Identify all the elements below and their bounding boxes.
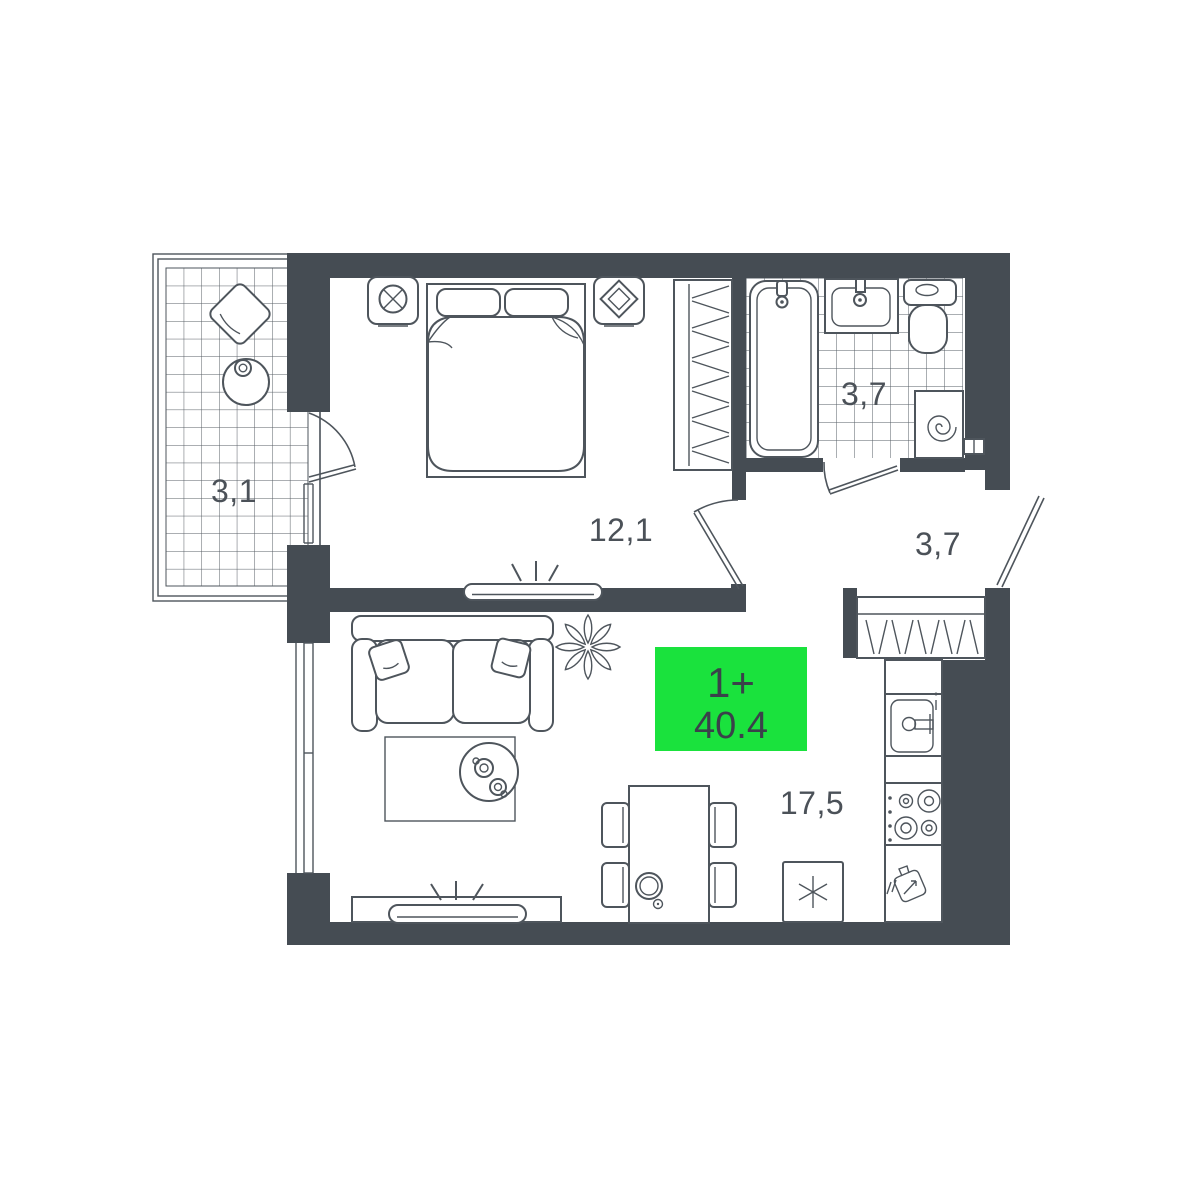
dining-chair bbox=[709, 863, 736, 907]
stove bbox=[885, 783, 942, 845]
dining-chair bbox=[602, 863, 629, 907]
snowflake-icon bbox=[799, 876, 827, 908]
pillow bbox=[505, 289, 568, 316]
kitchen-counter bbox=[885, 660, 942, 922]
blanket bbox=[428, 317, 584, 471]
bathtub bbox=[750, 281, 818, 457]
apartment-type-label: 1+ bbox=[707, 659, 755, 706]
bedroom-door bbox=[694, 500, 743, 589]
sofa-pillow bbox=[490, 637, 531, 678]
balcony-table bbox=[223, 359, 269, 405]
sofa bbox=[352, 616, 553, 731]
living-room-window bbox=[296, 643, 313, 873]
floor-plan: 3,1 bbox=[0, 0, 1200, 1200]
light-rays-icon bbox=[512, 561, 558, 581]
fridge bbox=[783, 862, 843, 922]
dining-set bbox=[602, 786, 736, 923]
dining-chair bbox=[602, 803, 629, 847]
bedside-table-left bbox=[368, 277, 418, 326]
balcony-door bbox=[309, 413, 356, 482]
coffee-table bbox=[460, 743, 518, 801]
bedroom-wardrobe bbox=[674, 280, 732, 470]
living-tv-stand bbox=[352, 881, 561, 923]
plant bbox=[556, 615, 620, 679]
room-label-hallway: 3,7 bbox=[915, 526, 961, 562]
living-kitchen: 17,5 bbox=[352, 615, 942, 923]
bedroom: 12,1 bbox=[368, 277, 732, 600]
bedside-table-right bbox=[594, 277, 644, 326]
hallway-closet bbox=[857, 597, 985, 658]
entrance-door bbox=[997, 496, 1044, 587]
dining-chair bbox=[709, 803, 736, 847]
bathroom: 3,7 bbox=[746, 278, 963, 458]
room-label-living-kitchen: 17,5 bbox=[780, 785, 844, 821]
bathroom-sink bbox=[825, 279, 898, 333]
bedroom-tv-stand bbox=[464, 561, 602, 600]
hanger-hatching-icon bbox=[866, 620, 978, 654]
bed bbox=[427, 284, 585, 477]
area-badge: 1+ 40.4 bbox=[655, 647, 807, 751]
washing-machine bbox=[915, 391, 963, 458]
light-rays-icon bbox=[431, 881, 483, 900]
kitchen-sink bbox=[885, 693, 942, 757]
kettle-icon bbox=[887, 866, 926, 902]
room-label-balcony: 3,1 bbox=[211, 473, 257, 509]
room-label-bedroom: 12,1 bbox=[589, 512, 653, 548]
dining-table bbox=[629, 786, 709, 923]
total-area-label: 40.4 bbox=[694, 705, 768, 747]
hallway: 3,7 bbox=[857, 526, 985, 658]
room-label-bathroom: 3,7 bbox=[841, 376, 887, 412]
hanger-hatching-icon bbox=[692, 286, 729, 463]
wall-duct-panel bbox=[964, 439, 984, 454]
pillow bbox=[437, 289, 500, 316]
bathroom-door bbox=[824, 462, 898, 494]
